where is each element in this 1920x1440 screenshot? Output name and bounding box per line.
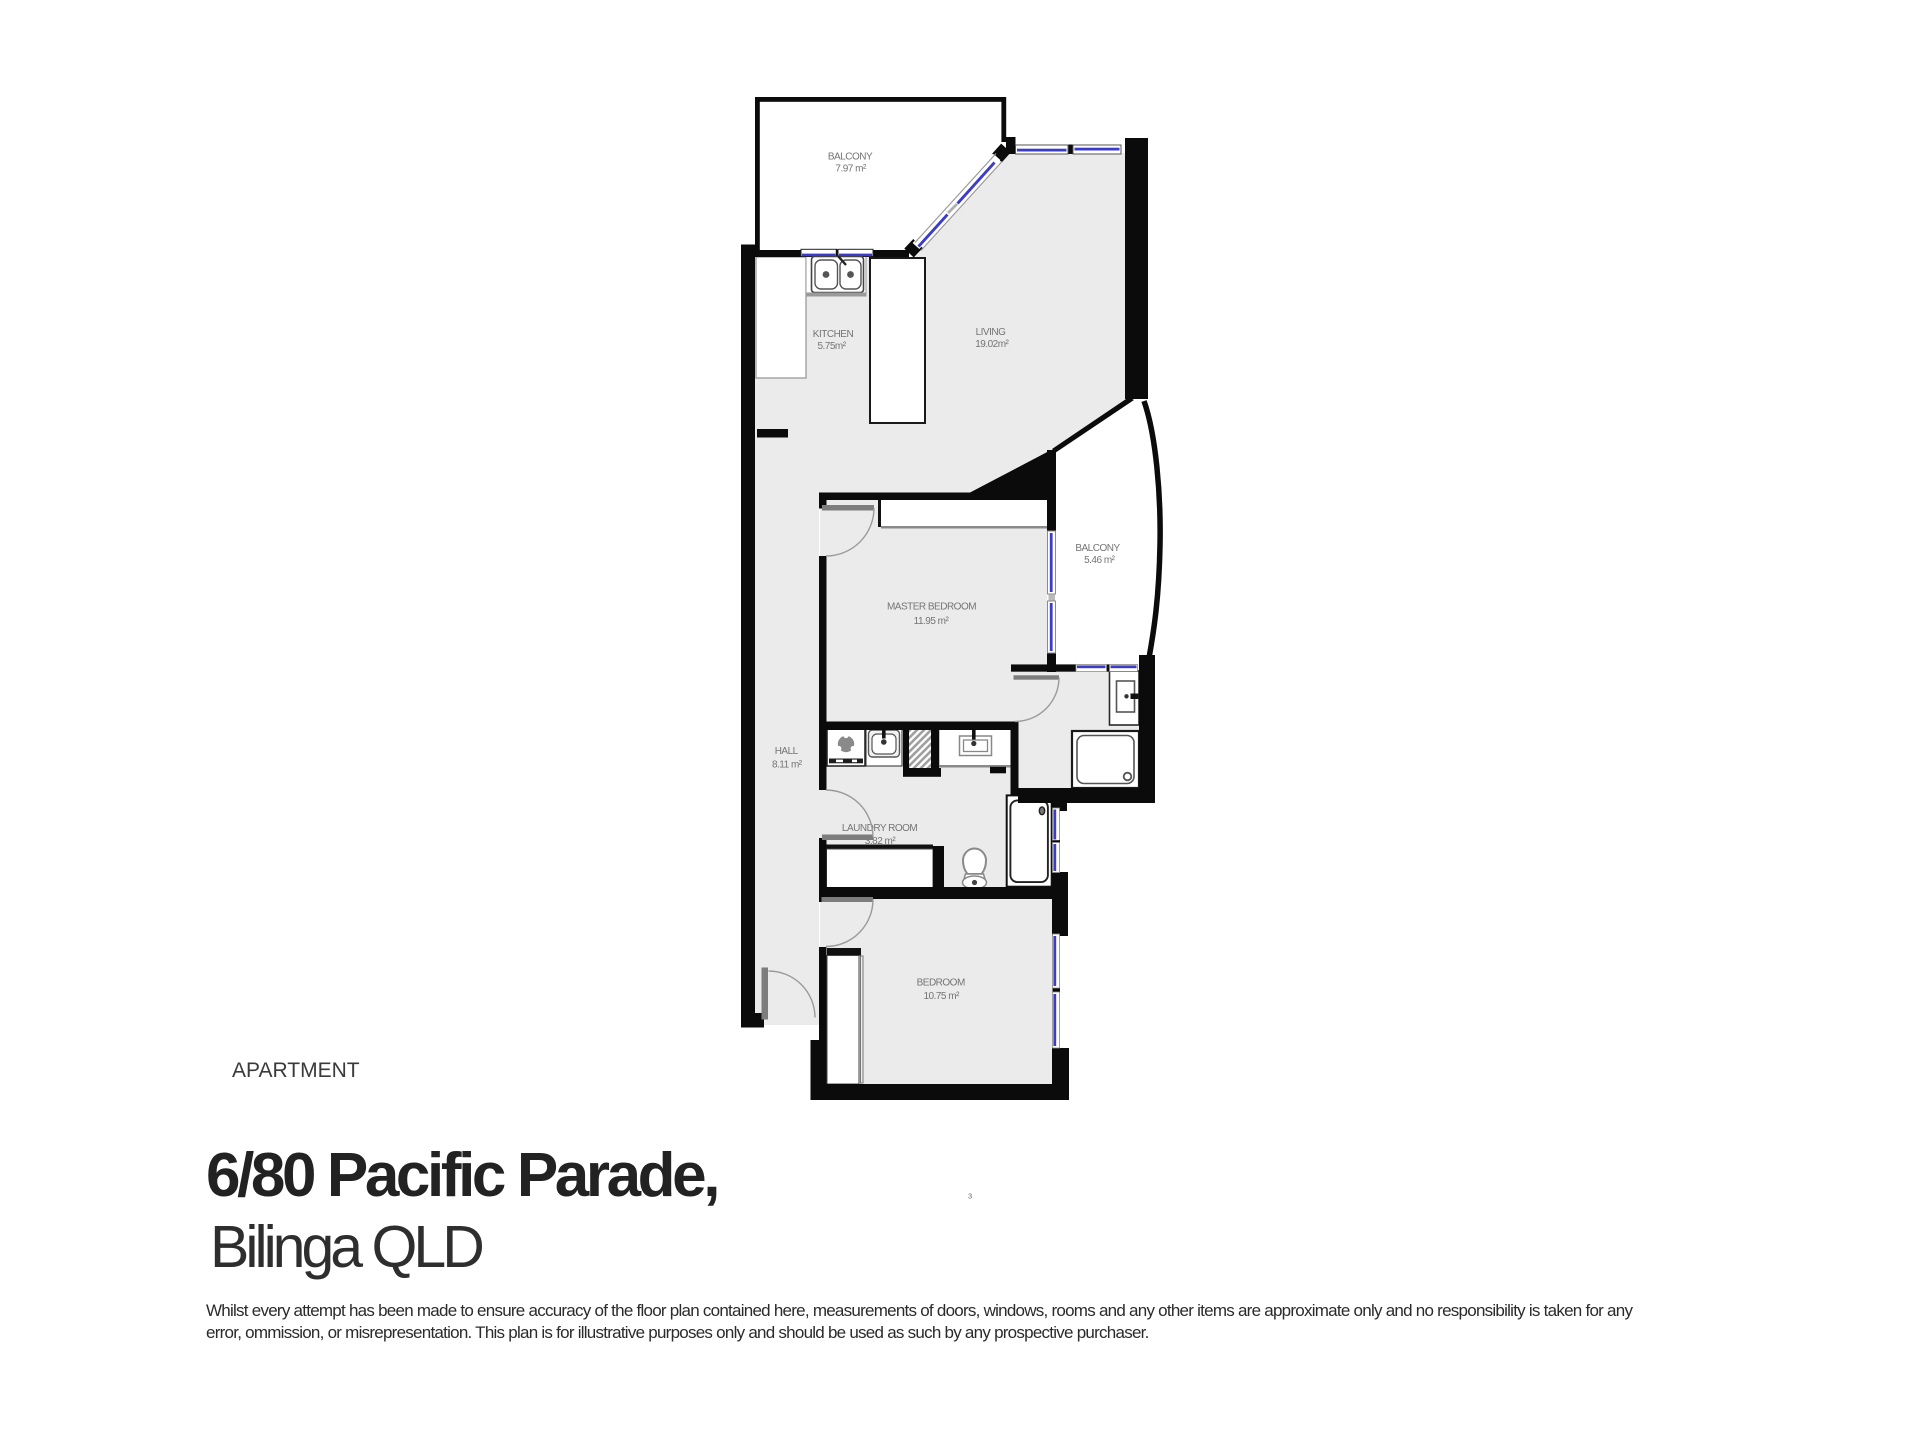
svg-text:8.11 m²: 8.11 m²: [772, 759, 803, 770]
svg-text:19.02m²: 19.02m²: [975, 339, 1009, 350]
svg-text:5.75m²: 5.75m²: [817, 341, 846, 352]
svg-text:10.75 m²: 10.75 m²: [923, 991, 960, 1002]
svg-text:3: 3: [968, 1192, 972, 1201]
svg-text:5.46 m²: 5.46 m²: [1084, 555, 1116, 566]
svg-text:BALCONY: BALCONY: [1075, 543, 1120, 554]
svg-text:LIVING: LIVING: [976, 327, 1007, 338]
svg-text:11.95 m²: 11.95 m²: [914, 616, 950, 627]
svg-text:HALL: HALL: [775, 746, 799, 757]
svg-text:BEDROOM: BEDROOM: [917, 977, 965, 988]
svg-text:7.97 m²: 7.97 m²: [835, 164, 867, 175]
svg-text:MASTER BEDROOM: MASTER BEDROOM: [887, 602, 976, 613]
svg-text:BALCONY: BALCONY: [828, 152, 873, 163]
svg-text:KITCHEN: KITCHEN: [813, 329, 854, 340]
svg-text:LAUNDRY ROOM: LAUNDRY ROOM: [842, 823, 917, 834]
